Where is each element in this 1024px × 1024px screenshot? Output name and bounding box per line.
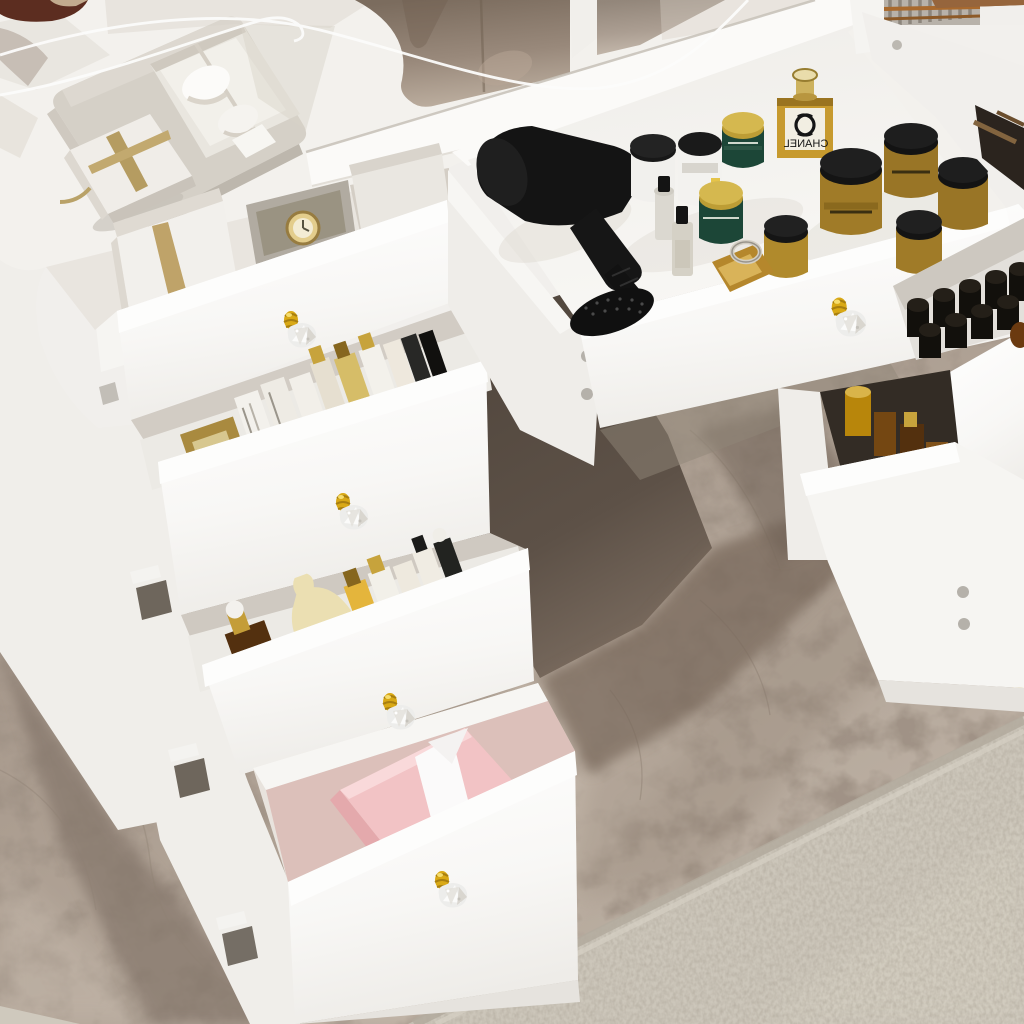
svg-text:CHANEL: CHANEL <box>784 138 829 150</box>
